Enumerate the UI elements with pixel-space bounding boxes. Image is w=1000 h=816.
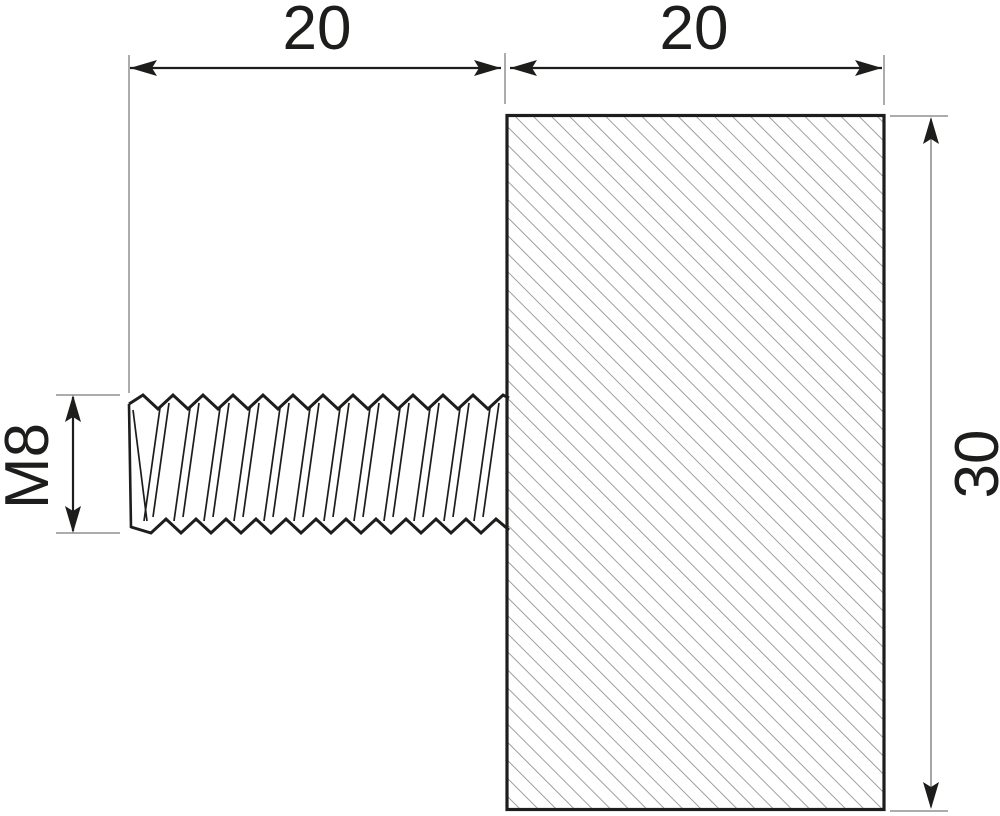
body-height-label: 30 [943, 430, 1000, 499]
dim-thread-designation: M8 [0, 395, 81, 533]
drawing-canvas: 20 20 30 M8 [0, 0, 1000, 816]
thread-length-label: 20 [283, 0, 352, 63]
dim-thread-length: 20 [130, 0, 501, 76]
body-width-label: 20 [660, 0, 729, 63]
dim-body-height: 30 [923, 117, 1000, 809]
thread-designation-label: M8 [0, 423, 62, 509]
technical-drawing: 20 20 30 M8 [0, 0, 1000, 816]
dim-body-width: 20 [510, 0, 882, 76]
thread-profile [129, 395, 509, 533]
hatched-body-section [507, 116, 884, 810]
